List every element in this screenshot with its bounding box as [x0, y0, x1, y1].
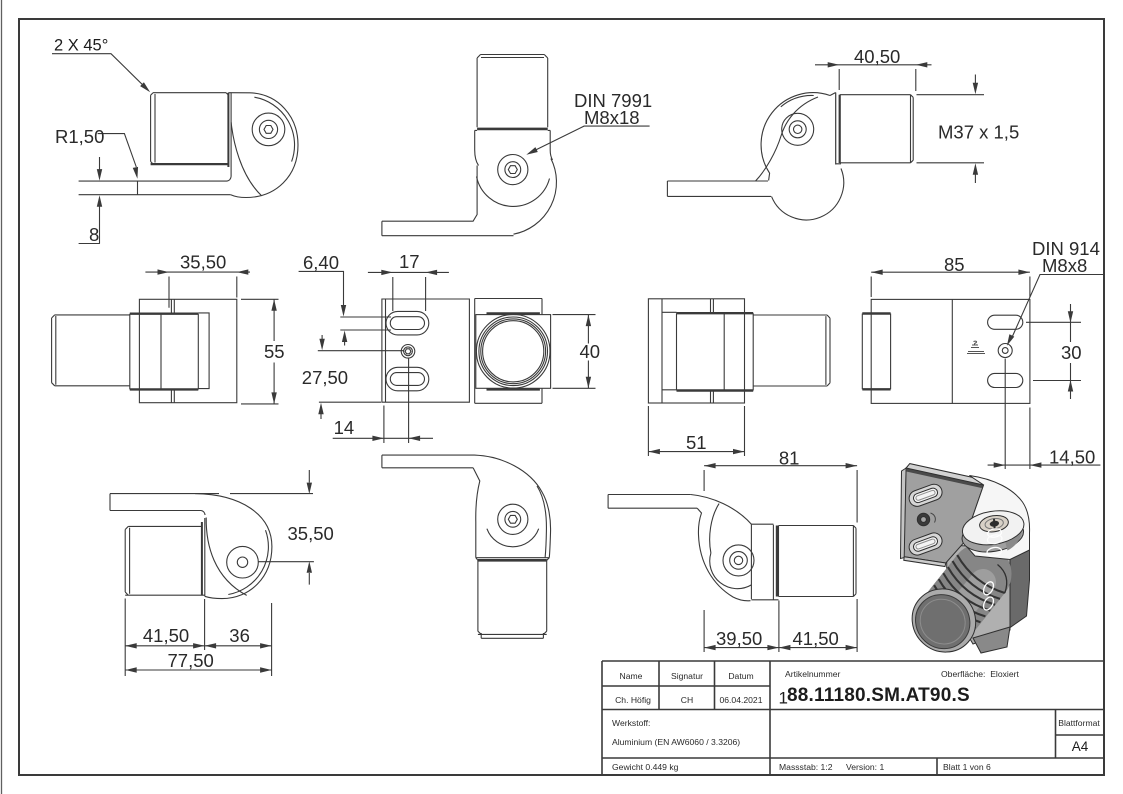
svg-text:14: 14: [334, 417, 355, 438]
svg-text:Datum: Datum: [728, 671, 753, 681]
svg-text:M37 x 1,5: M37 x 1,5: [938, 122, 1019, 143]
svg-text:88.11180.SM.AT90.S: 88.11180.SM.AT90.S: [787, 685, 970, 706]
svg-text:35,50: 35,50: [180, 252, 226, 273]
svg-text:06.04.2021: 06.04.2021: [719, 695, 762, 705]
svg-text:Werkstoff:: Werkstoff:: [612, 718, 650, 728]
svg-text:14,50: 14,50: [1049, 447, 1095, 468]
svg-text:Blattformat: Blattformat: [1058, 718, 1100, 728]
svg-text:39,50: 39,50: [716, 628, 762, 649]
svg-text:27,50: 27,50: [302, 367, 348, 388]
svg-text:Massstab: 1:2: Massstab: 1:2: [779, 762, 833, 772]
svg-text:Ch. Höfig: Ch. Höfig: [615, 695, 651, 705]
svg-text:77,50: 77,50: [168, 650, 214, 671]
svg-text:M8x8: M8x8: [1042, 255, 1087, 276]
svg-text:Blatt 1 von 6: Blatt 1 von 6: [943, 762, 991, 772]
svg-text:40: 40: [580, 341, 601, 362]
svg-text:6,40: 6,40: [303, 252, 339, 273]
svg-text:M8x18: M8x18: [584, 107, 640, 128]
svg-text:Signatur: Signatur: [671, 671, 703, 681]
svg-text:Artikelnummer: Artikelnummer: [785, 669, 841, 679]
svg-text:36: 36: [229, 625, 250, 646]
svg-text:81: 81: [779, 448, 800, 469]
svg-text:Aluminium (EN AW6060 / 3.3206): Aluminium (EN AW6060 / 3.3206): [612, 737, 740, 747]
svg-text:R1,50: R1,50: [55, 126, 104, 147]
svg-text:2 X 45°: 2 X 45°: [54, 37, 108, 55]
svg-text:35,50: 35,50: [288, 523, 334, 544]
svg-text:8: 8: [89, 224, 99, 245]
svg-text:41,50: 41,50: [143, 625, 189, 646]
svg-text:CH: CH: [681, 695, 693, 705]
svg-text:17: 17: [399, 251, 420, 272]
svg-text:55: 55: [264, 341, 285, 362]
svg-text:Name: Name: [620, 671, 643, 681]
svg-text:A4: A4: [1072, 739, 1089, 754]
svg-text:41,50: 41,50: [793, 628, 839, 649]
svg-text:Oberfläche: Eloxiert: Oberfläche: Eloxiert: [941, 669, 1019, 679]
svg-text:Version: 1: Version: 1: [846, 762, 884, 772]
svg-text:30: 30: [1061, 342, 1082, 363]
svg-text:51: 51: [686, 432, 707, 453]
svg-text:85: 85: [944, 254, 965, 275]
svg-text:Gewicht 0.449 kg: Gewicht 0.449 kg: [612, 762, 679, 772]
svg-text:40,50: 40,50: [854, 46, 900, 67]
